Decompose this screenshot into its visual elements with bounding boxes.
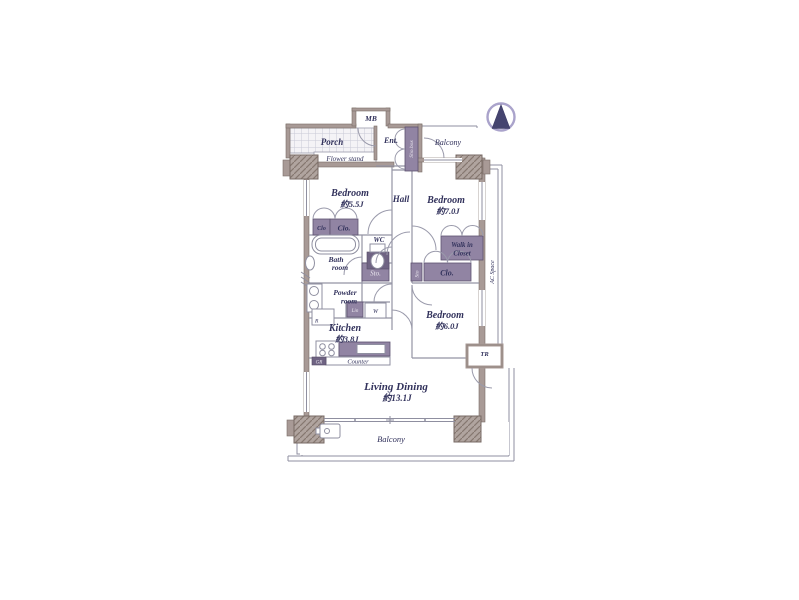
label-clo1: Clo. bbox=[338, 224, 351, 233]
label-kitchen: Kitchen bbox=[328, 323, 362, 334]
label-powder-2: room bbox=[341, 297, 357, 306]
label-gr: GR bbox=[316, 361, 323, 366]
label-clo-small: Clo bbox=[317, 226, 326, 232]
label-bath-2: room bbox=[332, 263, 348, 272]
label-hall: Hall bbox=[392, 194, 410, 204]
label-bedroom3-size: 約6.0J bbox=[434, 321, 459, 331]
pillar-bottom-right bbox=[454, 416, 481, 442]
label-bedroom2: Bedroom bbox=[426, 195, 465, 206]
slop-sink-icon bbox=[316, 424, 340, 438]
label-living: Living Dining bbox=[363, 381, 428, 393]
label-bedroom1-size: 約5.5J bbox=[339, 199, 364, 209]
label-flower-stand: Flower stand bbox=[325, 155, 364, 163]
label-shoebox: Sho.box bbox=[409, 140, 415, 158]
label-living-size: 約13.1J bbox=[381, 393, 412, 403]
label-bedroom3: Bedroom bbox=[425, 310, 464, 321]
label-ent: Ent. bbox=[383, 136, 398, 145]
label-kitchen-size: 約3.8J bbox=[334, 334, 359, 344]
label-balcony-bottom: Balcony bbox=[377, 434, 405, 444]
label-balcony-top: Balcony bbox=[435, 138, 462, 147]
label-sto-side: Sto bbox=[415, 270, 421, 277]
pillar-top-left bbox=[290, 155, 318, 179]
label-mb: MB bbox=[364, 114, 377, 123]
label-bedroom2-size: 約7.0J bbox=[435, 206, 460, 216]
label-wc: WC bbox=[374, 236, 385, 244]
floorplan-drawing: MB Porch Flower stand Ent. Sho.box Balco… bbox=[0, 0, 799, 600]
label-bedroom1: Bedroom bbox=[330, 188, 369, 199]
label-ac-space: AC Space bbox=[490, 260, 496, 285]
label-tr: TR bbox=[480, 351, 489, 358]
pillar-tab bbox=[483, 160, 490, 174]
label-walkin-1: Walk in bbox=[451, 242, 473, 249]
compass-icon bbox=[488, 104, 515, 131]
washstand-icon bbox=[307, 284, 322, 312]
floorplan-page: MB Porch Flower stand Ent. Sho.box Balco… bbox=[0, 0, 799, 600]
label-counter: Counter bbox=[347, 359, 369, 366]
label-fridge: R bbox=[314, 319, 319, 325]
label-sto-main: Sto. bbox=[370, 270, 381, 278]
label-walkin-2: Closet bbox=[453, 251, 471, 258]
label-porch: Porch bbox=[321, 137, 344, 147]
label-clo2: Clo. bbox=[440, 269, 454, 278]
label-lin: Lin bbox=[351, 309, 359, 314]
